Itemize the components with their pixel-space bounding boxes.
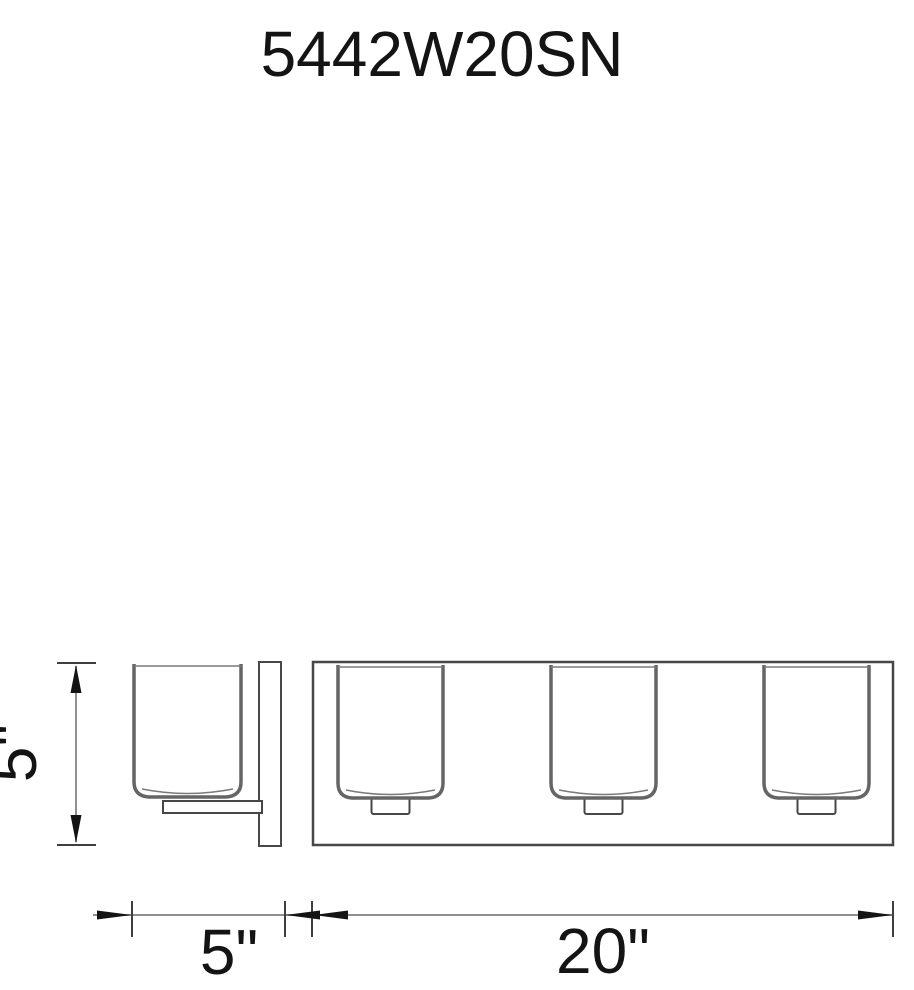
side-view-arm bbox=[163, 801, 262, 813]
glass-shade-outline bbox=[551, 665, 656, 798]
arrowhead-right bbox=[858, 911, 893, 920]
glass-shade bbox=[338, 665, 443, 798]
model-number-title: 5442W20SN bbox=[261, 18, 624, 90]
glass-shade-side bbox=[134, 664, 241, 797]
depth-dimension-label: 5" bbox=[200, 916, 258, 988]
arrowhead-up bbox=[71, 665, 82, 693]
side-view bbox=[134, 662, 281, 846]
product-dimension-drawing: 5442W20SN bbox=[0, 0, 914, 990]
glass-shade-outline bbox=[764, 665, 869, 798]
bottom-dimensions: 5" 20" bbox=[93, 901, 893, 988]
glass-shade bbox=[551, 665, 656, 798]
glass-shade-outline bbox=[338, 665, 443, 798]
glass-shade bbox=[764, 665, 869, 798]
side-view-backplate bbox=[259, 662, 281, 846]
height-dimension-label: 5" bbox=[0, 724, 50, 782]
arrowhead-down bbox=[71, 815, 82, 843]
height-dimension: 5" bbox=[0, 663, 96, 845]
front-view bbox=[313, 662, 893, 845]
arrowhead-right bbox=[97, 911, 132, 920]
width-dimension-label: 20" bbox=[556, 915, 650, 987]
